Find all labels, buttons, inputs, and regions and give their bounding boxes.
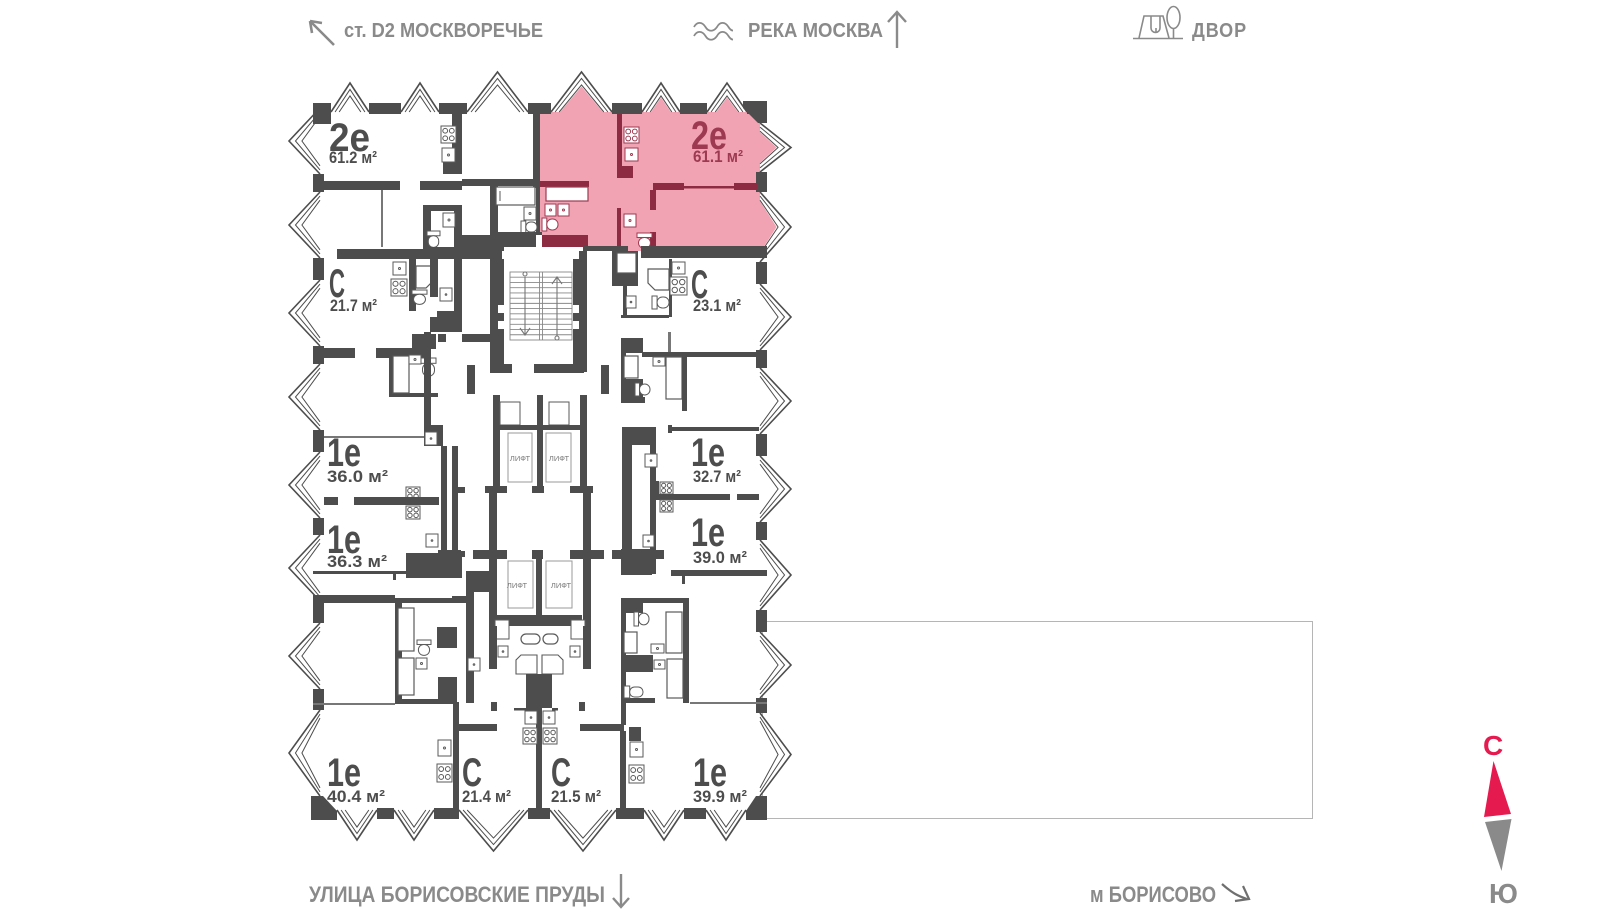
svg-text:РЕКА МОСКВА: РЕКА МОСКВА [748, 20, 883, 42]
svg-text:ДВОР: ДВОР [1192, 20, 1247, 42]
svg-text:ЛИФТ: ЛИФТ [549, 454, 570, 463]
svg-text:УЛИЦА БОРИСОВСКИЕ ПРУДЫ: УЛИЦА БОРИСОВСКИЕ ПРУДЫ [309, 882, 605, 907]
svg-text:ЛИФТ: ЛИФТ [507, 581, 528, 590]
svg-text:Ю: Ю [1489, 878, 1518, 909]
svg-text:32.7 м²: 32.7 м² [693, 467, 741, 486]
svg-text:21.4 м²: 21.4 м² [462, 787, 511, 806]
svg-text:61.1 м²: 61.1 м² [693, 147, 743, 166]
svg-text:21.7 м²: 21.7 м² [330, 296, 377, 315]
svg-text:61.2 м²: 61.2 м² [329, 148, 377, 167]
svg-text:39.0 м²: 39.0 м² [693, 548, 747, 567]
svg-text:С: С [1483, 730, 1503, 761]
svg-text:39.9 м²: 39.9 м² [693, 787, 747, 806]
svg-text:23.1 м²: 23.1 м² [693, 296, 741, 315]
svg-text:ЛИФТ: ЛИФТ [510, 454, 531, 463]
svg-text:36.0 м²: 36.0 м² [327, 467, 388, 486]
svg-text:ст. D2 МОСКВОРЕЧЬЕ: ст. D2 МОСКВОРЕЧЬЕ [344, 20, 543, 42]
svg-text:36.3 м²: 36.3 м² [327, 552, 387, 571]
svg-text:21.5 м²: 21.5 м² [551, 787, 601, 806]
svg-text:40.4 м²: 40.4 м² [327, 787, 385, 806]
svg-text:ЛИФТ: ЛИФТ [551, 581, 572, 590]
svg-text:м БОРИСОВО: м БОРИСОВО [1090, 882, 1216, 907]
